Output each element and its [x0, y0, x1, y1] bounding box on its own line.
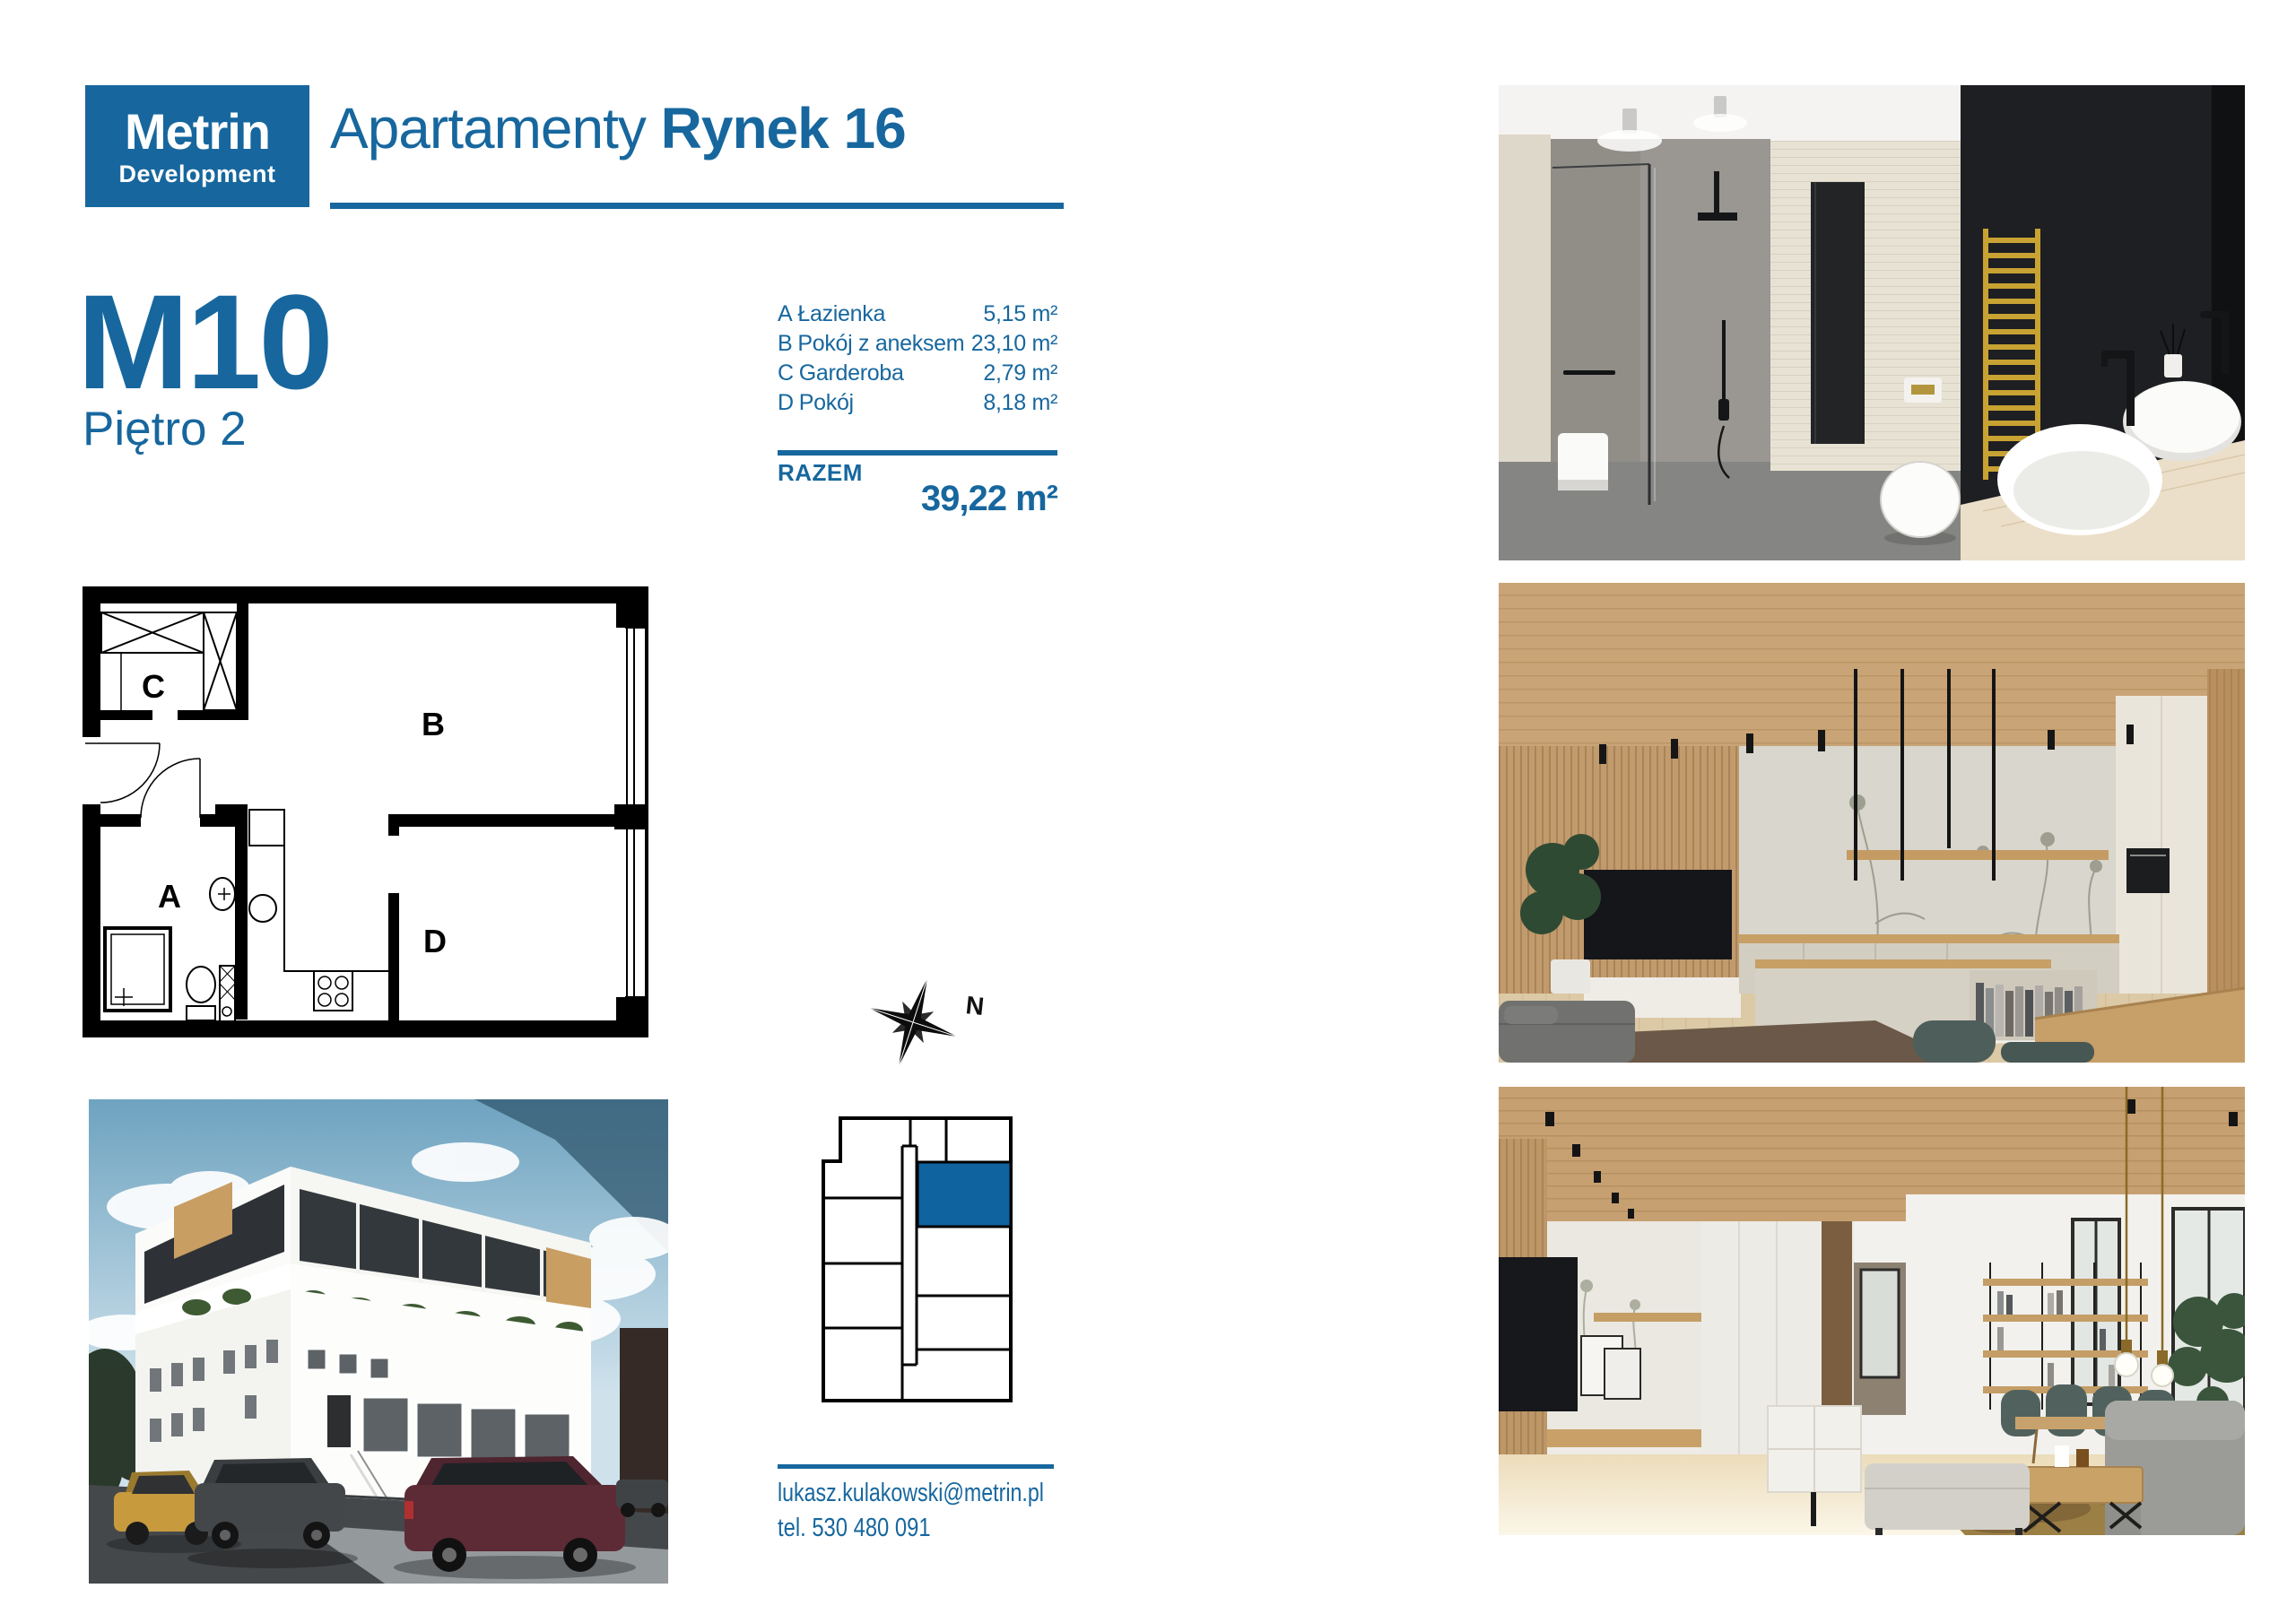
highlighted-unit-m10	[918, 1162, 1011, 1227]
tv-panel	[1499, 1257, 1578, 1411]
metrin-logo: Metrin Development	[85, 85, 309, 207]
floorplan-walls	[83, 586, 648, 1037]
title-regular: Apartamenty	[330, 96, 646, 161]
dining-chair	[2001, 1042, 2094, 1063]
floorplan-wardrobe	[101, 612, 237, 710]
compass-north-label: N	[964, 991, 985, 1020]
unit-floor-label: Piętro 2	[83, 405, 247, 453]
floorplan-doors	[85, 743, 200, 818]
flyer-page: Metrin Development Apartamenty Rynek 16 …	[0, 0, 2296, 1623]
tv-unit	[1584, 870, 1741, 1018]
total-divider	[778, 450, 1057, 456]
room-area: 5,15 m²	[983, 301, 1057, 327]
room-row-b: BPokój z aneksem 23,10 m²	[778, 331, 1057, 360]
living-room-interior-render	[1499, 1087, 2245, 1535]
building-exterior-render	[89, 1099, 668, 1584]
room-label-c: C	[142, 668, 165, 705]
logo-line2: Development	[118, 162, 275, 187]
title-underline	[330, 203, 1064, 209]
room-letter: C	[778, 360, 794, 386]
contact-divider	[778, 1464, 1054, 1469]
room-area: 23,10 m²	[971, 331, 1057, 357]
wall-shelf	[1594, 1313, 1701, 1322]
title-bold: Rynek 16	[661, 96, 906, 161]
room-name: Pokój	[799, 390, 854, 415]
room-name: Garderoba	[799, 360, 904, 386]
room-label-a: A	[158, 878, 181, 915]
picture-frame	[1605, 1349, 1640, 1399]
page-title: Apartamenty Rynek 16	[330, 97, 906, 160]
kitchen-living-interior-render	[1499, 583, 2245, 1063]
room-name: Łazienka	[797, 301, 885, 326]
room-row-a: AŁazienka 5,15 m²	[778, 301, 1057, 331]
logo-line1: Metrin	[125, 107, 270, 157]
room-area: 2,79 m²	[983, 360, 1057, 386]
unit-code: M10	[77, 274, 331, 409]
room-letter: D	[778, 390, 794, 415]
floorplan-kitchen	[249, 810, 388, 1011]
apartment-floorplan: A B C D	[79, 581, 654, 1041]
bathroom-interior-render	[1499, 85, 2245, 560]
ottoman	[1865, 1463, 2030, 1535]
room-row-c: CGarderoba 2,79 m²	[778, 360, 1057, 390]
tall-cabinet	[1811, 182, 1865, 444]
room-area: 8,18 m²	[983, 390, 1057, 416]
room-row-d: DPokój 8,18 m²	[778, 390, 1057, 420]
room-label-d: D	[423, 923, 447, 959]
sofa	[1499, 1001, 1635, 1063]
unit-location-diagram	[814, 1110, 1024, 1410]
room-label-b: B	[422, 706, 445, 742]
contact-email: lukasz.kulakowski@metrin.pl	[778, 1479, 1044, 1508]
contact-phone: tel. 530 480 091	[778, 1514, 931, 1543]
room-list: AŁazienka 5,15 m² BPokój z aneksem 23,10…	[778, 301, 1057, 420]
total-area: 39,22 m²	[778, 479, 1057, 519]
compass-rose-icon: N	[850, 967, 1012, 1079]
dining-chair	[1913, 1020, 1996, 1063]
room-name: Pokój z aneksem	[797, 331, 964, 356]
room-letter: A	[778, 301, 792, 326]
wall-shelf	[1847, 850, 2109, 860]
room-letter: B	[778, 331, 792, 356]
